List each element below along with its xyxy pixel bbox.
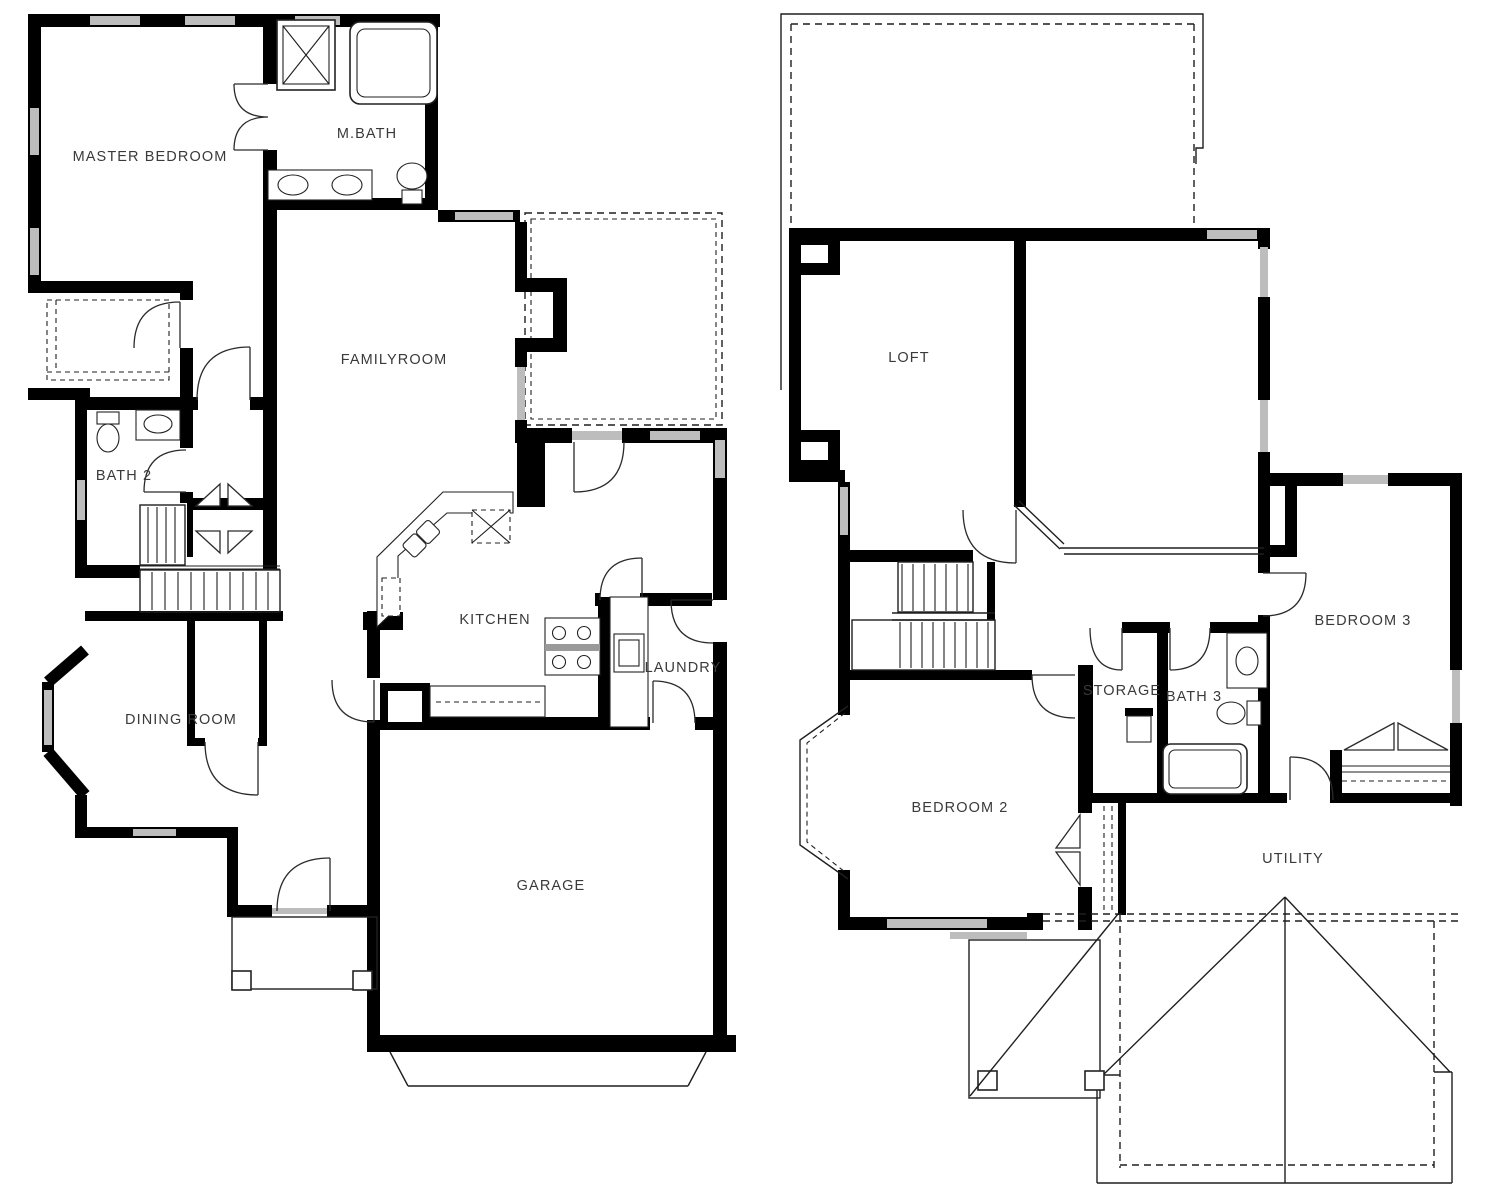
laundry-exterior-door xyxy=(671,600,713,643)
bathtub-icon xyxy=(350,22,437,104)
staircase-first-floor xyxy=(140,505,280,612)
room-label-laundry: LAUNDRY xyxy=(645,660,722,676)
room-label-bedroom-2: BEDROOM 2 xyxy=(912,800,1009,816)
hall-closet-doors xyxy=(196,484,252,553)
staircase-second-floor xyxy=(852,562,995,670)
roof-ridge-lines xyxy=(1100,897,1450,1183)
kitchen-counter xyxy=(430,686,545,717)
room-label-dining-room: DINING ROOM xyxy=(125,712,237,728)
closet-shelves-icon xyxy=(47,300,169,380)
room-label-loft: LOFT xyxy=(888,350,929,366)
dishwasher-icon xyxy=(382,578,400,616)
understair-closet-door xyxy=(205,742,258,795)
room-label-bath-3: BATH 3 xyxy=(1166,689,1222,705)
room-label-bath-2: BATH 2 xyxy=(96,468,152,484)
toilet-icon xyxy=(97,412,119,452)
oven-icon xyxy=(610,597,648,727)
dining-kitchen-door xyxy=(332,680,374,722)
front-porch xyxy=(232,917,377,990)
front-entry-door xyxy=(277,858,330,911)
second-floor-windows xyxy=(840,230,1460,939)
floor-plan-page: MASTER BEDROOM M.BATH FAMILYROOM BATH 2 … xyxy=(0,0,1500,1200)
room-label-familyroom: FAMILYROOM xyxy=(341,352,448,368)
first-floor-plan xyxy=(28,14,736,1086)
laundry-door xyxy=(600,558,642,600)
sink-icon xyxy=(136,410,180,440)
first-floor-walls xyxy=(28,14,736,1052)
bath3-door xyxy=(1170,628,1210,670)
storage-door xyxy=(1090,628,1122,670)
shower-icon xyxy=(277,20,335,90)
master-closet-door xyxy=(134,302,180,348)
bedroom2-door xyxy=(1032,675,1075,718)
room-label-garage: GARAGE xyxy=(517,878,586,894)
room-label-m-bath: M.BATH xyxy=(337,126,397,142)
room-label-utility: UTILITY xyxy=(1262,851,1324,867)
second-floor-plan xyxy=(781,14,1462,1183)
roof-outline-bottom xyxy=(969,897,1460,1183)
vanity-sinks-icon xyxy=(268,170,372,200)
pantry-closet xyxy=(388,691,422,722)
room-label-bedroom-3: BEDROOM 3 xyxy=(1315,613,1412,629)
toilet-icon xyxy=(1217,701,1261,725)
room-label-master-bedroom: MASTER BEDROOM xyxy=(73,149,228,165)
bay-window xyxy=(800,706,848,879)
bedroom3-closet xyxy=(1342,723,1450,781)
patio-door xyxy=(574,442,624,492)
floor-plan-drawing: MASTER BEDROOM M.BATH FAMILYROOM BATH 2 … xyxy=(0,0,1500,1200)
roof-outline-top xyxy=(781,14,1203,390)
mbath-double-door xyxy=(234,84,268,150)
room-label-kitchen: KITCHEN xyxy=(459,612,530,628)
master-bedroom-door xyxy=(197,347,250,400)
room-label-storage: STORAGE xyxy=(1083,683,1161,699)
laundry-garage-door xyxy=(653,681,695,723)
bathtub-icon xyxy=(1163,744,1247,794)
toilet-icon xyxy=(397,163,427,204)
wall-bumpouts xyxy=(801,245,1151,742)
second-floor-walls xyxy=(789,228,1462,930)
bedroom3-door xyxy=(1263,573,1306,616)
kitchen-island xyxy=(377,492,513,627)
vanity-sink-icon xyxy=(1227,633,1267,688)
railing xyxy=(1014,501,1264,554)
range-icon xyxy=(545,618,600,675)
utility-door xyxy=(1290,757,1333,800)
garage-door xyxy=(390,1052,706,1086)
